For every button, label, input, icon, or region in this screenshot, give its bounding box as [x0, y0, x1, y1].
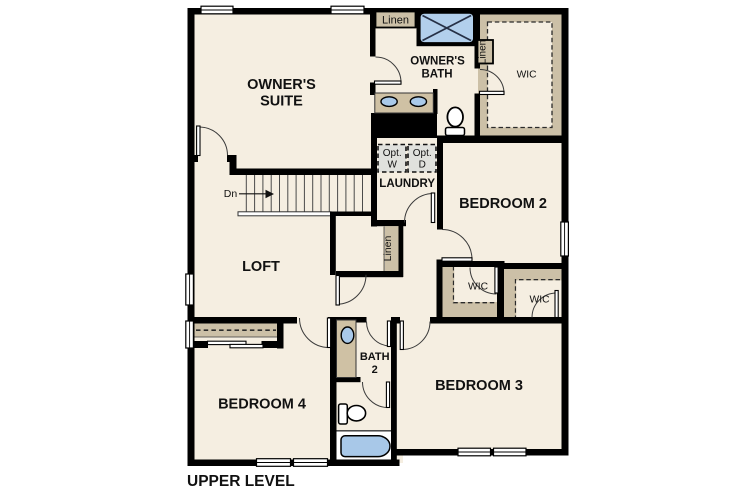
svg-text:BEDROOM 4: BEDROOM 4: [218, 397, 306, 413]
svg-text:Opt.: Opt.: [413, 148, 432, 159]
svg-text:LOFT: LOFT: [242, 259, 280, 275]
svg-text:WIC: WIC: [529, 294, 550, 305]
svg-text:OWNER'S: OWNER'S: [410, 55, 465, 67]
svg-text:OWNER'S: OWNER'S: [247, 77, 316, 93]
svg-text:WIC: WIC: [468, 281, 489, 292]
svg-text:UPPER LEVEL: UPPER LEVEL: [187, 473, 295, 490]
svg-text:Linen: Linen: [382, 236, 394, 262]
svg-text:2: 2: [372, 364, 378, 376]
svg-text:BATH: BATH: [360, 351, 390, 363]
svg-text:Opt.: Opt.: [383, 148, 402, 159]
svg-text:BEDROOM 2: BEDROOM 2: [459, 196, 547, 212]
svg-text:Dn: Dn: [224, 188, 238, 200]
svg-text:Linen: Linen: [382, 15, 409, 27]
svg-text:W: W: [387, 160, 397, 171]
svg-text:LAUNDRY: LAUNDRY: [379, 178, 435, 190]
svg-text:D: D: [419, 160, 426, 171]
svg-text:BATH: BATH: [421, 68, 452, 80]
svg-text:BEDROOM 3: BEDROOM 3: [435, 378, 523, 394]
svg-text:SUITE: SUITE: [260, 94, 303, 110]
svg-text:Linen: Linen: [478, 40, 489, 64]
svg-text:WIC: WIC: [517, 70, 538, 81]
